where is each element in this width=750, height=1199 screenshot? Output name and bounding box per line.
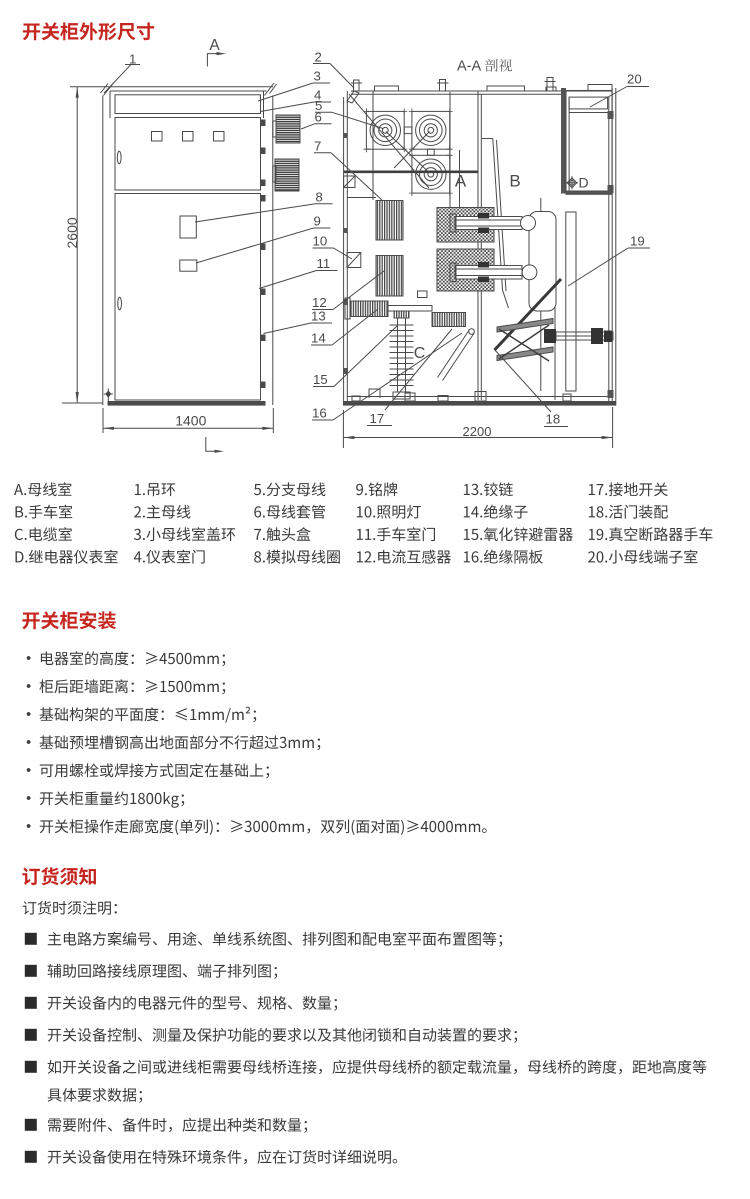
svg-text:2200: 2200 (463, 424, 492, 439)
svg-text:B: B (509, 172, 520, 191)
svg-text:A: A (209, 37, 220, 54)
svg-text:A: A (455, 172, 467, 191)
svg-text:16: 16 (312, 406, 327, 421)
svg-text:20: 20 (627, 72, 642, 87)
svg-text:D: D (578, 174, 588, 190)
svg-text:6: 6 (315, 109, 322, 124)
svg-text:18: 18 (546, 412, 561, 427)
svg-text:17: 17 (370, 411, 385, 426)
svg-text:3: 3 (314, 69, 321, 84)
svg-text:2: 2 (315, 50, 322, 65)
svg-text:2600: 2600 (64, 217, 80, 248)
svg-text:15: 15 (313, 372, 328, 387)
svg-text:7: 7 (314, 138, 321, 153)
svg-text:A-A: A-A (457, 59, 482, 75)
svg-text:19: 19 (630, 234, 645, 249)
svg-text:10: 10 (313, 234, 328, 249)
svg-text:8: 8 (316, 189, 323, 204)
svg-text:14: 14 (311, 331, 326, 346)
svg-text:13: 13 (311, 309, 326, 324)
svg-text:1400: 1400 (175, 413, 206, 429)
svg-text:1: 1 (129, 52, 136, 67)
svg-text:9: 9 (314, 214, 321, 229)
svg-text:11: 11 (317, 256, 331, 271)
svg-text:C: C (414, 345, 426, 362)
